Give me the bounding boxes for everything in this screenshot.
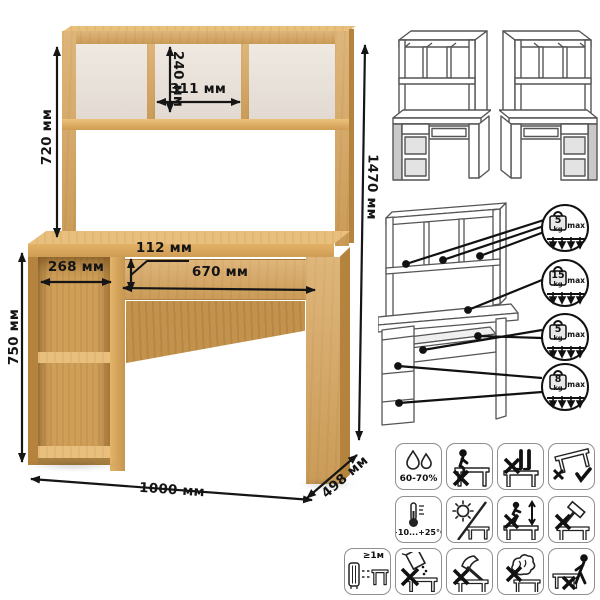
icon-no-sitting <box>446 443 493 490</box>
load-value: 5 <box>550 326 566 334</box>
no-sunlight-icon <box>450 500 490 540</box>
icon-no-chopping <box>446 548 493 595</box>
icon-no-dragging <box>548 548 595 595</box>
icon-no-standing <box>497 443 544 490</box>
thermometer-icon <box>399 502 439 528</box>
no-standing-icon <box>501 447 541 487</box>
furniture-spec-sheet: 720 мм 240 мм 311 мм 1470 мм 112 мм 268 … <box>0 0 600 600</box>
load-badge-drawer: 5kg max <box>541 313 589 361</box>
load-unit: kg <box>550 384 566 392</box>
no-cloth-icon <box>501 552 541 592</box>
load-value: 8 <box>550 376 566 384</box>
load-limit-diagram: 5kg max 15kg max <box>378 192 600 432</box>
no-spill-icon <box>399 552 439 592</box>
load-badge-shelves: 5kg max <box>541 204 589 252</box>
no-drag-icon <box>552 552 592 592</box>
no-sitting-icon <box>450 447 490 487</box>
max-label: max <box>567 276 585 285</box>
icon-level-surface <box>548 443 595 490</box>
icon-no-spilling <box>395 548 442 595</box>
load-value: 15 <box>550 272 566 280</box>
dim-cubby-height: 240 мм <box>170 51 186 107</box>
dim-cubby-width: 311 мм <box>170 81 226 97</box>
icon-humidity: 60-70% <box>395 443 442 490</box>
water-drops-icon <box>399 450 439 474</box>
icon-temperature: +10...+25°C <box>395 496 442 543</box>
max-label: max <box>567 380 585 389</box>
desk-render: 720 мм 240 мм 311 мм 1470 мм 112 мм 268 … <box>0 0 390 600</box>
icon-no-jumping <box>497 496 544 543</box>
no-jumping-icon <box>501 500 541 540</box>
dim-drawer-height: 112 мм <box>136 240 192 256</box>
icon-no-hammering <box>548 496 595 543</box>
distance-label: ≥1м <box>363 551 384 561</box>
load-arrows-icon <box>546 237 586 250</box>
max-label: max <box>567 330 585 339</box>
load-unit: kg <box>550 280 566 288</box>
load-arrows-icon <box>546 346 586 359</box>
no-hammer-icon <box>552 500 592 540</box>
variant-right-pedestal-drawing <box>499 14 599 186</box>
load-arrows-icon <box>546 292 586 305</box>
heater-distance-icon <box>347 562 389 592</box>
load-arrows-icon <box>546 396 586 409</box>
icon-no-abrasives <box>497 548 544 595</box>
no-axe-icon <box>450 552 490 592</box>
load-value: 5 <box>550 217 566 225</box>
load-unit: kg <box>550 334 566 342</box>
icon-heater-distance: ≥1м <box>344 548 391 595</box>
variant-left-pedestal-drawing <box>391 14 491 186</box>
max-label: max <box>567 221 585 230</box>
level-surface-icon <box>552 447 592 487</box>
icon-no-sunlight <box>446 496 493 543</box>
dim-small-drawer: 268 мм <box>48 259 104 275</box>
humidity-label: 60-70% <box>400 474 438 484</box>
dim-large-drawer: 670 мм <box>192 264 248 280</box>
dim-hutch-height: 720 мм <box>39 109 55 165</box>
load-unit: kg <box>550 225 566 233</box>
temperature-label: +10...+25°C <box>395 528 442 538</box>
dim-table-height: 750 мм <box>6 309 22 365</box>
load-badge-pedestal: 8kg max <box>541 363 589 411</box>
load-badge-desktop: 15kg max <box>541 259 589 307</box>
